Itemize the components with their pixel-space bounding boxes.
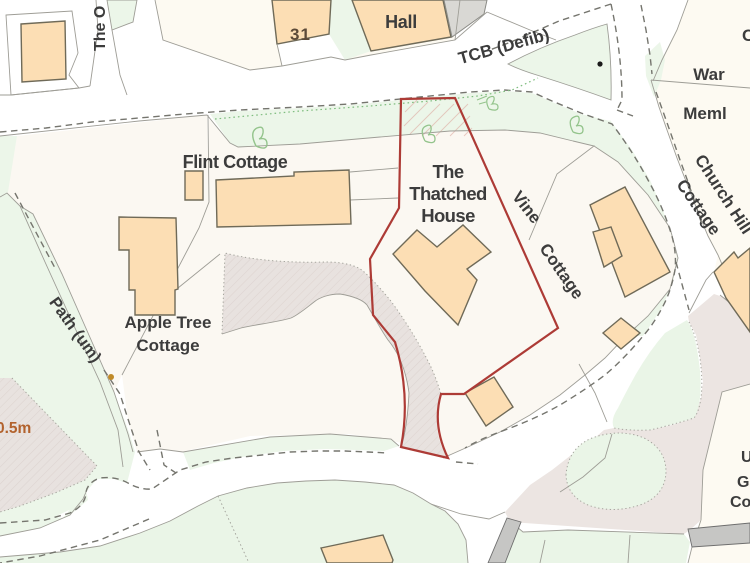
svg-text:31: 31 [290, 25, 311, 44]
svg-text:0.5m: 0.5m [0, 420, 31, 437]
svg-text:The: The [432, 161, 463, 182]
svg-text:U: U [741, 449, 750, 466]
svg-text:Cottage: Cottage [136, 336, 199, 355]
svg-text:War: War [693, 65, 725, 84]
svg-text:C: C [742, 26, 750, 45]
svg-text:The O: The O [92, 6, 109, 51]
svg-text:Co: Co [730, 494, 750, 511]
svg-text:Ga: Ga [737, 474, 750, 491]
svg-text:Apple Tree: Apple Tree [125, 313, 212, 332]
svg-text:Hall: Hall [385, 12, 417, 32]
svg-text:Meml: Meml [683, 104, 726, 123]
svg-text:House: House [421, 205, 475, 226]
svg-text:Flint Cottage: Flint Cottage [183, 152, 288, 172]
svg-text:Thatched: Thatched [409, 183, 487, 204]
